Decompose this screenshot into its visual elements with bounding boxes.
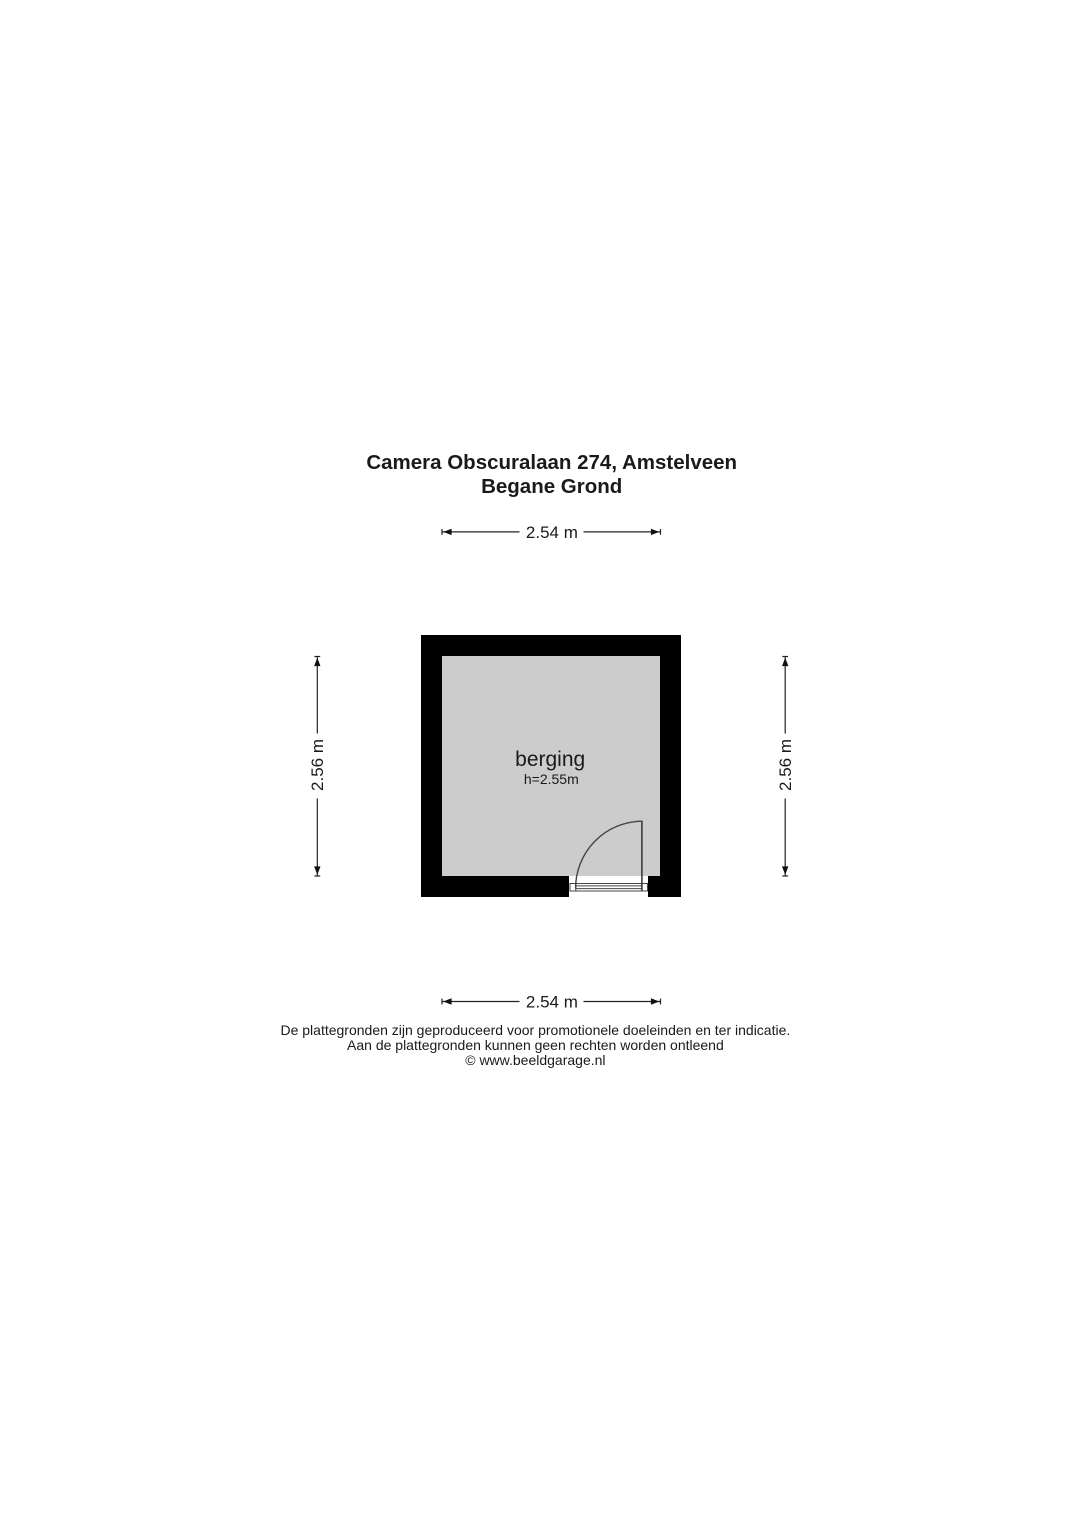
svg-text:2.56 m: 2.56 m	[776, 739, 795, 791]
svg-text:2.56 m: 2.56 m	[308, 739, 327, 791]
svg-text:2.54 m: 2.54 m	[526, 992, 578, 1011]
svg-text:2.54 m: 2.54 m	[526, 523, 578, 542]
